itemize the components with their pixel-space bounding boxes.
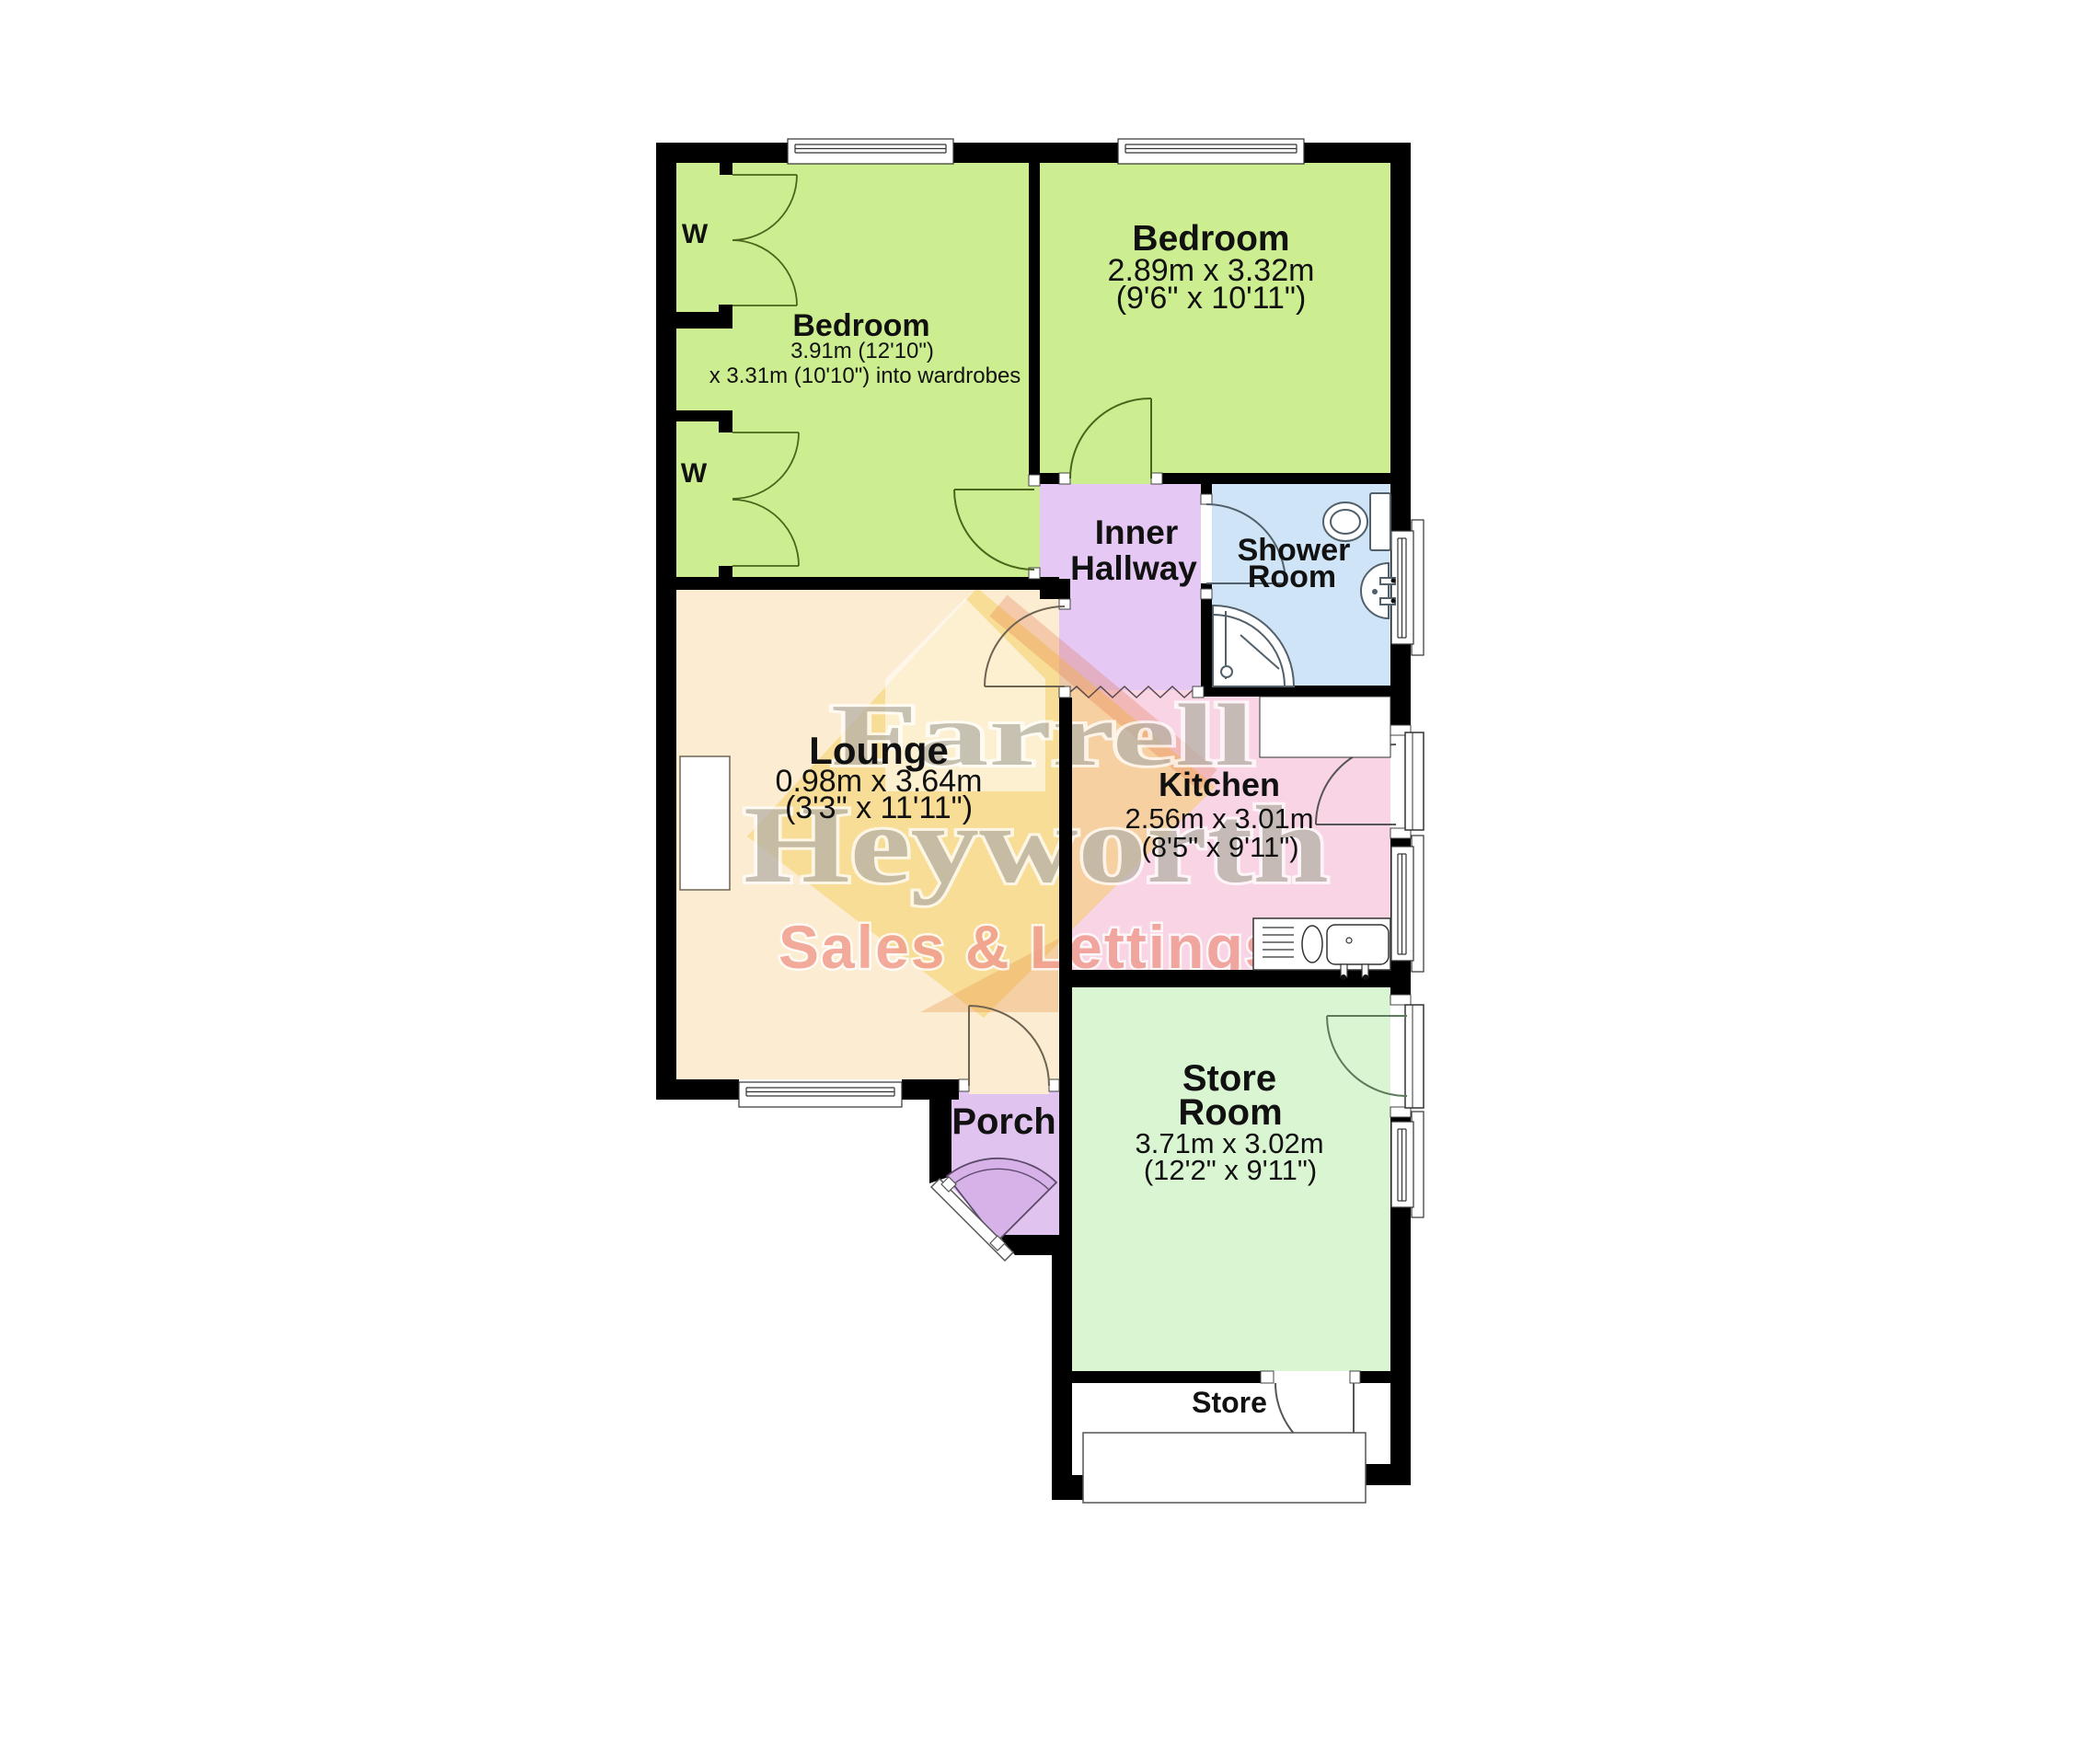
svg-text:Store: Store: [1192, 1386, 1267, 1419]
svg-text:W: W: [682, 219, 709, 249]
svg-text:(12'2" x 9'11"): (12'2" x 9'11"): [1144, 1154, 1317, 1186]
svg-text:Kitchen: Kitchen: [1159, 766, 1280, 803]
svg-text:(8'5" x 9'11"): (8'5" x 9'11"): [1141, 831, 1298, 863]
svg-text:Hallway: Hallway: [1070, 549, 1197, 587]
svg-text:(9'6" x 10'11"): (9'6" x 10'11"): [1116, 281, 1307, 316]
svg-text:x 3.31m (10'10") into wardrobe: x 3.31m (10'10") into wardrobes: [709, 363, 1021, 388]
svg-text:(3'3" x 11'11"): (3'3" x 11'11"): [785, 790, 973, 825]
svg-text:Porch: Porch: [951, 1101, 1055, 1142]
svg-text:2.56m x 3.01m: 2.56m x 3.01m: [1124, 802, 1313, 835]
svg-text:Inner: Inner: [1095, 513, 1178, 551]
svg-text:Room: Room: [1248, 559, 1336, 594]
svg-text:3.91m (12'10"): 3.91m (12'10"): [790, 339, 934, 363]
svg-text:W: W: [681, 458, 708, 489]
